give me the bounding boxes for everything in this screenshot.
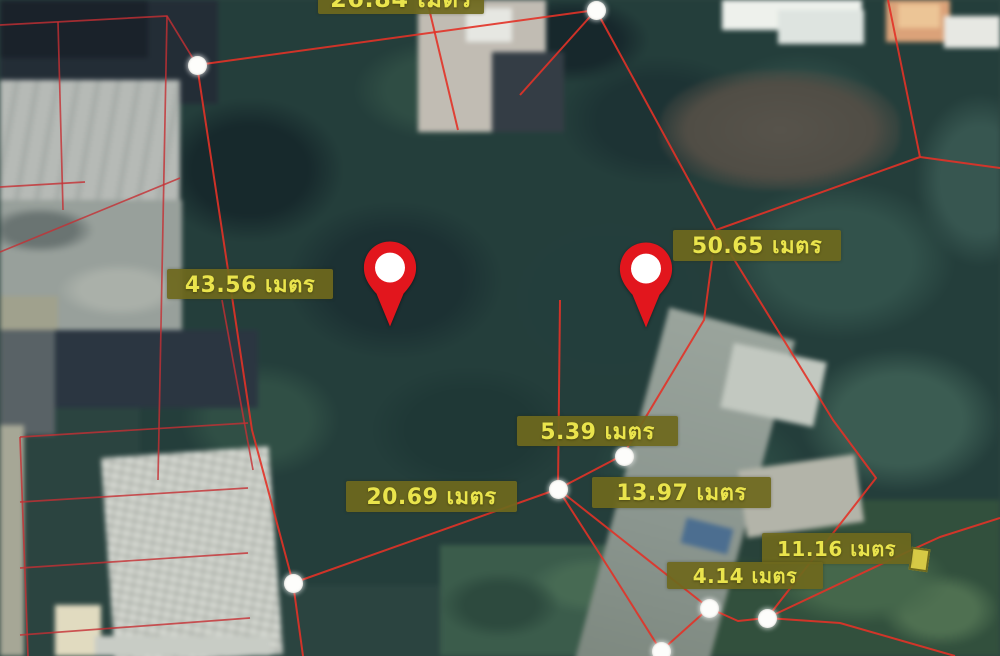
sat-orange-roof-bright [898,4,940,28]
sat-lowerleft-darkband [52,330,258,408]
sat-topcenter-white [466,8,512,42]
sat-bottom-left-pave [95,636,270,656]
sat-top-white-roof2 [778,10,864,44]
sat-topleft-darker [0,0,148,58]
sat-left-strip [0,425,24,656]
sat-lowerleft-white-roof [101,446,283,656]
sat-topright-white [944,16,1000,48]
satellite-map-canvas[interactable]: 26.84 เมตร43.56 เมตร50.65 เมตร5.39 เมตร1… [0,0,1000,656]
satellite-imagery [0,0,1000,656]
sat-topcenter-dark [492,52,564,132]
sat-topleft-light-roof [0,80,180,208]
sat-brown-clearing [660,70,900,190]
sat-lowerleft-gray [0,330,55,435]
